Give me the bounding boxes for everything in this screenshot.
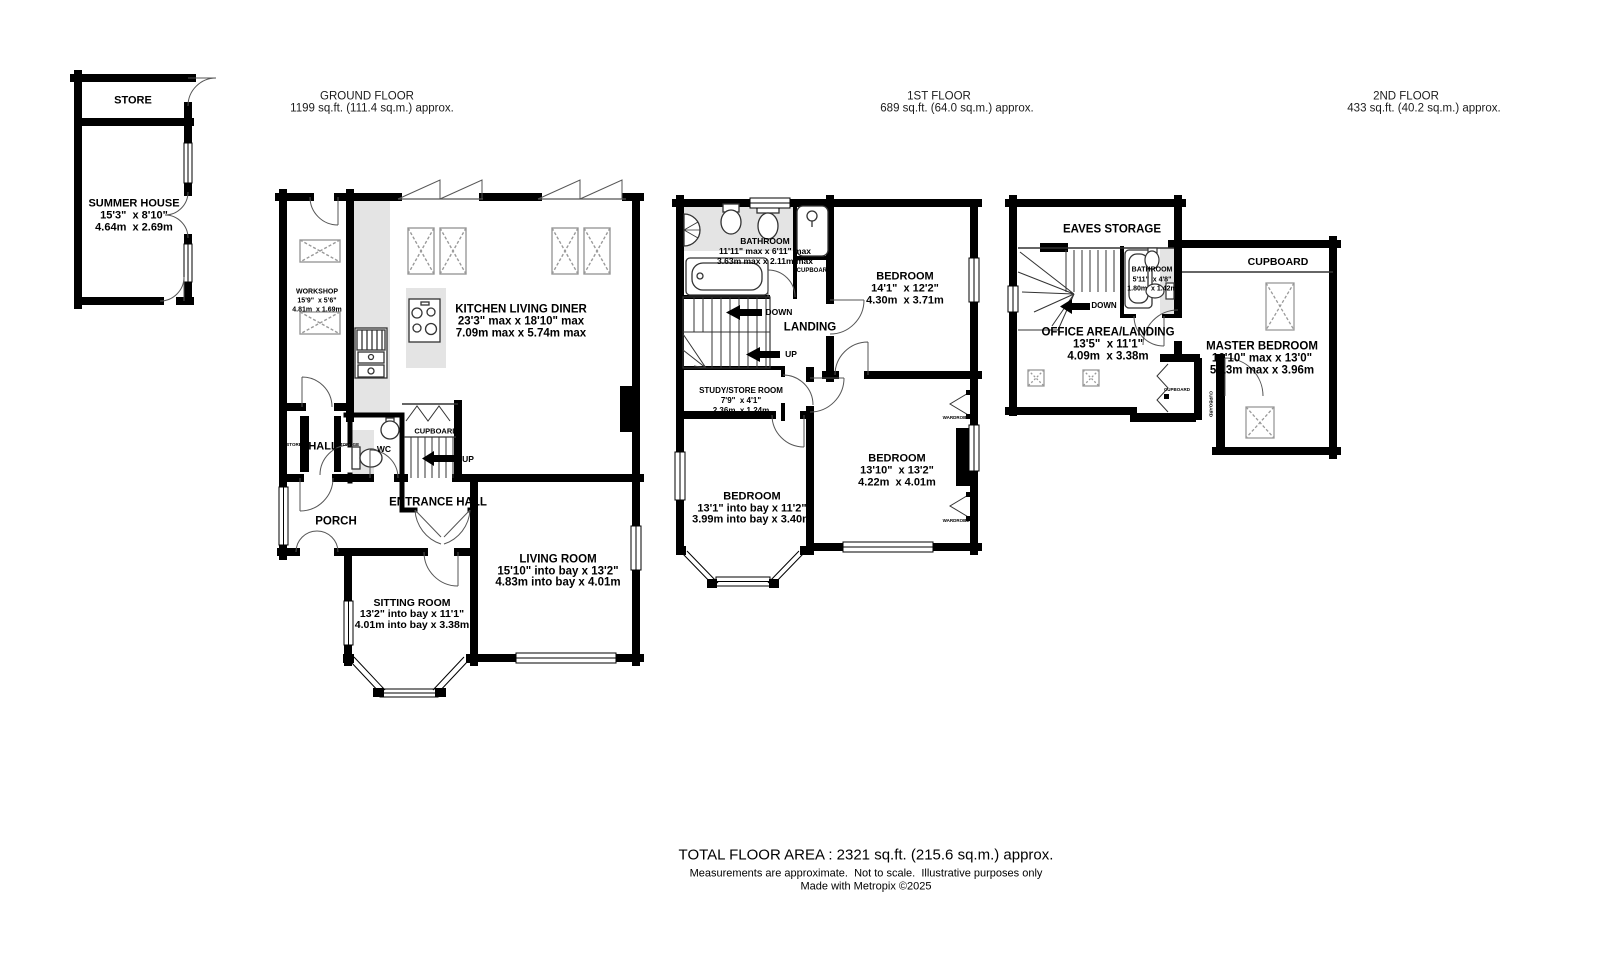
living-room-label: LIVING ROOM	[519, 554, 596, 566]
up-label-first: UP	[785, 350, 797, 359]
outbuilding-plan	[74, 74, 216, 305]
master-bedroom-label: MASTER BEDROOM	[1206, 341, 1318, 353]
bathroom1-label: BATHROOM	[740, 237, 789, 246]
living-room-dims-m: 4.83m into bay x 4.01m	[495, 577, 620, 589]
bedroom1-dims-ft: 14'1" x 12'2"	[871, 284, 939, 295]
workshop-dims-m: 4.81m x 1.69m	[292, 307, 341, 314]
chimney-breast	[620, 386, 636, 432]
kitchen-label: KITCHEN LIVING DINER	[455, 304, 587, 316]
up-label-ground: UP	[462, 455, 474, 464]
second-floor-area: 433 sq.ft. (40.2 sq.m.) approx.	[1347, 103, 1500, 115]
storage-closet-label: STORAGE	[337, 443, 359, 448]
up-arrow-icon	[746, 347, 780, 362]
floorplan: GROUND FLOOR 1199 sq.ft. (111.4 sq.m.) a…	[0, 0, 1600, 965]
first-floor-title: 1ST FLOOR	[907, 91, 971, 103]
first-floor-area: 689 sq.ft. (64.0 sq.m.) approx.	[880, 103, 1033, 115]
credit-text: Made with Metropix ©2025	[800, 882, 931, 893]
summer-house-dims-ft: 15'3" x 8'10"	[100, 211, 168, 222]
master-bedroom-dims-m: 5.13m max x 3.96m	[1210, 365, 1314, 377]
down-label-first: DOWN	[766, 308, 793, 317]
study-dims-m: 2.36m x 1.24m	[713, 407, 769, 415]
bedroom1-label: BEDROOM	[876, 272, 933, 283]
cupboard-label-first: CUPBOARD	[797, 268, 832, 274]
hob-icon	[409, 299, 440, 342]
toilet-icon	[757, 204, 779, 239]
sink-icon	[721, 204, 741, 234]
cupboard-label-ground: CUPBOARD	[414, 427, 457, 435]
office-area-label: OFFICE AREA/LANDING	[1041, 327, 1174, 339]
bedroom2-label: BEDROOM	[868, 454, 925, 465]
bathroom1-dims-ft: 11'11" max x 6'11" max	[719, 247, 811, 256]
store-closet-label: STORE	[286, 443, 301, 448]
stairs-icon	[1018, 250, 1114, 330]
hall-label: HALL	[308, 442, 337, 453]
window-icon	[1008, 286, 1018, 312]
kitchen-counter	[352, 201, 390, 415]
total-floor-area: TOTAL FLOOR AREA : 2321 sq.ft. (215.6 sq…	[679, 848, 1054, 863]
bedroom3-label: BEDROOM	[723, 492, 780, 503]
eaves-storage-label: EAVES STORAGE	[1063, 224, 1161, 236]
wardrobe-label: WARDROBE	[943, 416, 970, 421]
study-dims-ft: 7'9" x 4'1"	[721, 397, 761, 405]
study-label: STUDY/STORE ROOM	[699, 387, 783, 395]
cupboard-label-second: CUPBOARD	[1248, 257, 1309, 268]
down-label-second: DOWN	[1091, 302, 1116, 310]
cupboard-small-label: CUPBOARD	[1164, 388, 1190, 393]
entrance-hall-label: ENTRANCE HALL	[389, 497, 487, 509]
outbuilding-walls	[74, 74, 192, 305]
sitting-room-dims-ft: 13'2" into bay x 11'1"	[360, 609, 464, 620]
summer-house-dims-m: 4.64m x 2.69m	[95, 223, 173, 234]
workshop-dims-ft: 15'9" x 5'6"	[297, 298, 336, 305]
lobby-wall	[1130, 413, 1196, 422]
kitchen-dims-ft: 23'3" max x 18'10" max	[458, 316, 584, 328]
floorplan-drawing	[0, 0, 1600, 965]
porch-label: PORCH	[315, 516, 357, 528]
office-area-dims-m: 4.09m x 3.38m	[1067, 351, 1148, 363]
bedroom2-dims-ft: 13'10" x 13'2"	[860, 466, 934, 477]
store-label: STORE	[114, 96, 152, 107]
bathroom2-label: BATHROOM	[1132, 267, 1173, 274]
sitting-room-label: SITTING ROOM	[374, 598, 451, 609]
lobby-wall	[1194, 358, 1202, 420]
second-floor-title: 2ND FLOOR	[1373, 91, 1439, 103]
sitting-room-dims-m: 4.01m into bay x 3.38m	[355, 620, 469, 631]
ground-floor-title: GROUND FLOOR	[320, 91, 414, 103]
landing-label: LANDING	[784, 322, 836, 334]
bedroom3-dims-m: 3.99m into bay x 3.40m	[692, 515, 812, 526]
cupboard-small-label: CUPBOARD	[1208, 391, 1213, 417]
down-arrow-icon	[1060, 299, 1090, 314]
kitchen-dims-m: 7.09m max x 5.74m max	[456, 328, 586, 340]
sink-icon	[381, 418, 399, 439]
office-area-dims-ft: 13'5" x 11'1"	[1073, 339, 1143, 351]
window-icon	[184, 143, 192, 282]
summer-house-label: SUMMER HOUSE	[88, 199, 179, 210]
bedroom2-dims-m: 4.22m x 4.01m	[858, 478, 936, 489]
bathroom1-dims-m: 3.63m max x 2.11m max	[717, 257, 813, 266]
master-bedroom-dims-ft: 16'10" max x 13'0"	[1212, 353, 1312, 365]
kitchen-sink-icon	[355, 328, 387, 378]
wardrobe-label: WARDROBE	[943, 519, 970, 524]
wc-label: WC	[377, 445, 391, 454]
bathroom2-dims-ft: 5'11" x 4'8"	[1133, 277, 1172, 284]
workshop-label: WORKSHOP	[296, 289, 338, 296]
bathroom2-dims-m: 1.80m x 1.42m	[1127, 286, 1176, 293]
disclaimer-text: Measurements are approximate. Not to sca…	[690, 869, 1043, 880]
ground-floor-area: 1199 sq.ft. (111.4 sq.m.) approx.	[290, 103, 454, 115]
bedroom1-dims-m: 4.30m x 3.71m	[866, 296, 944, 307]
